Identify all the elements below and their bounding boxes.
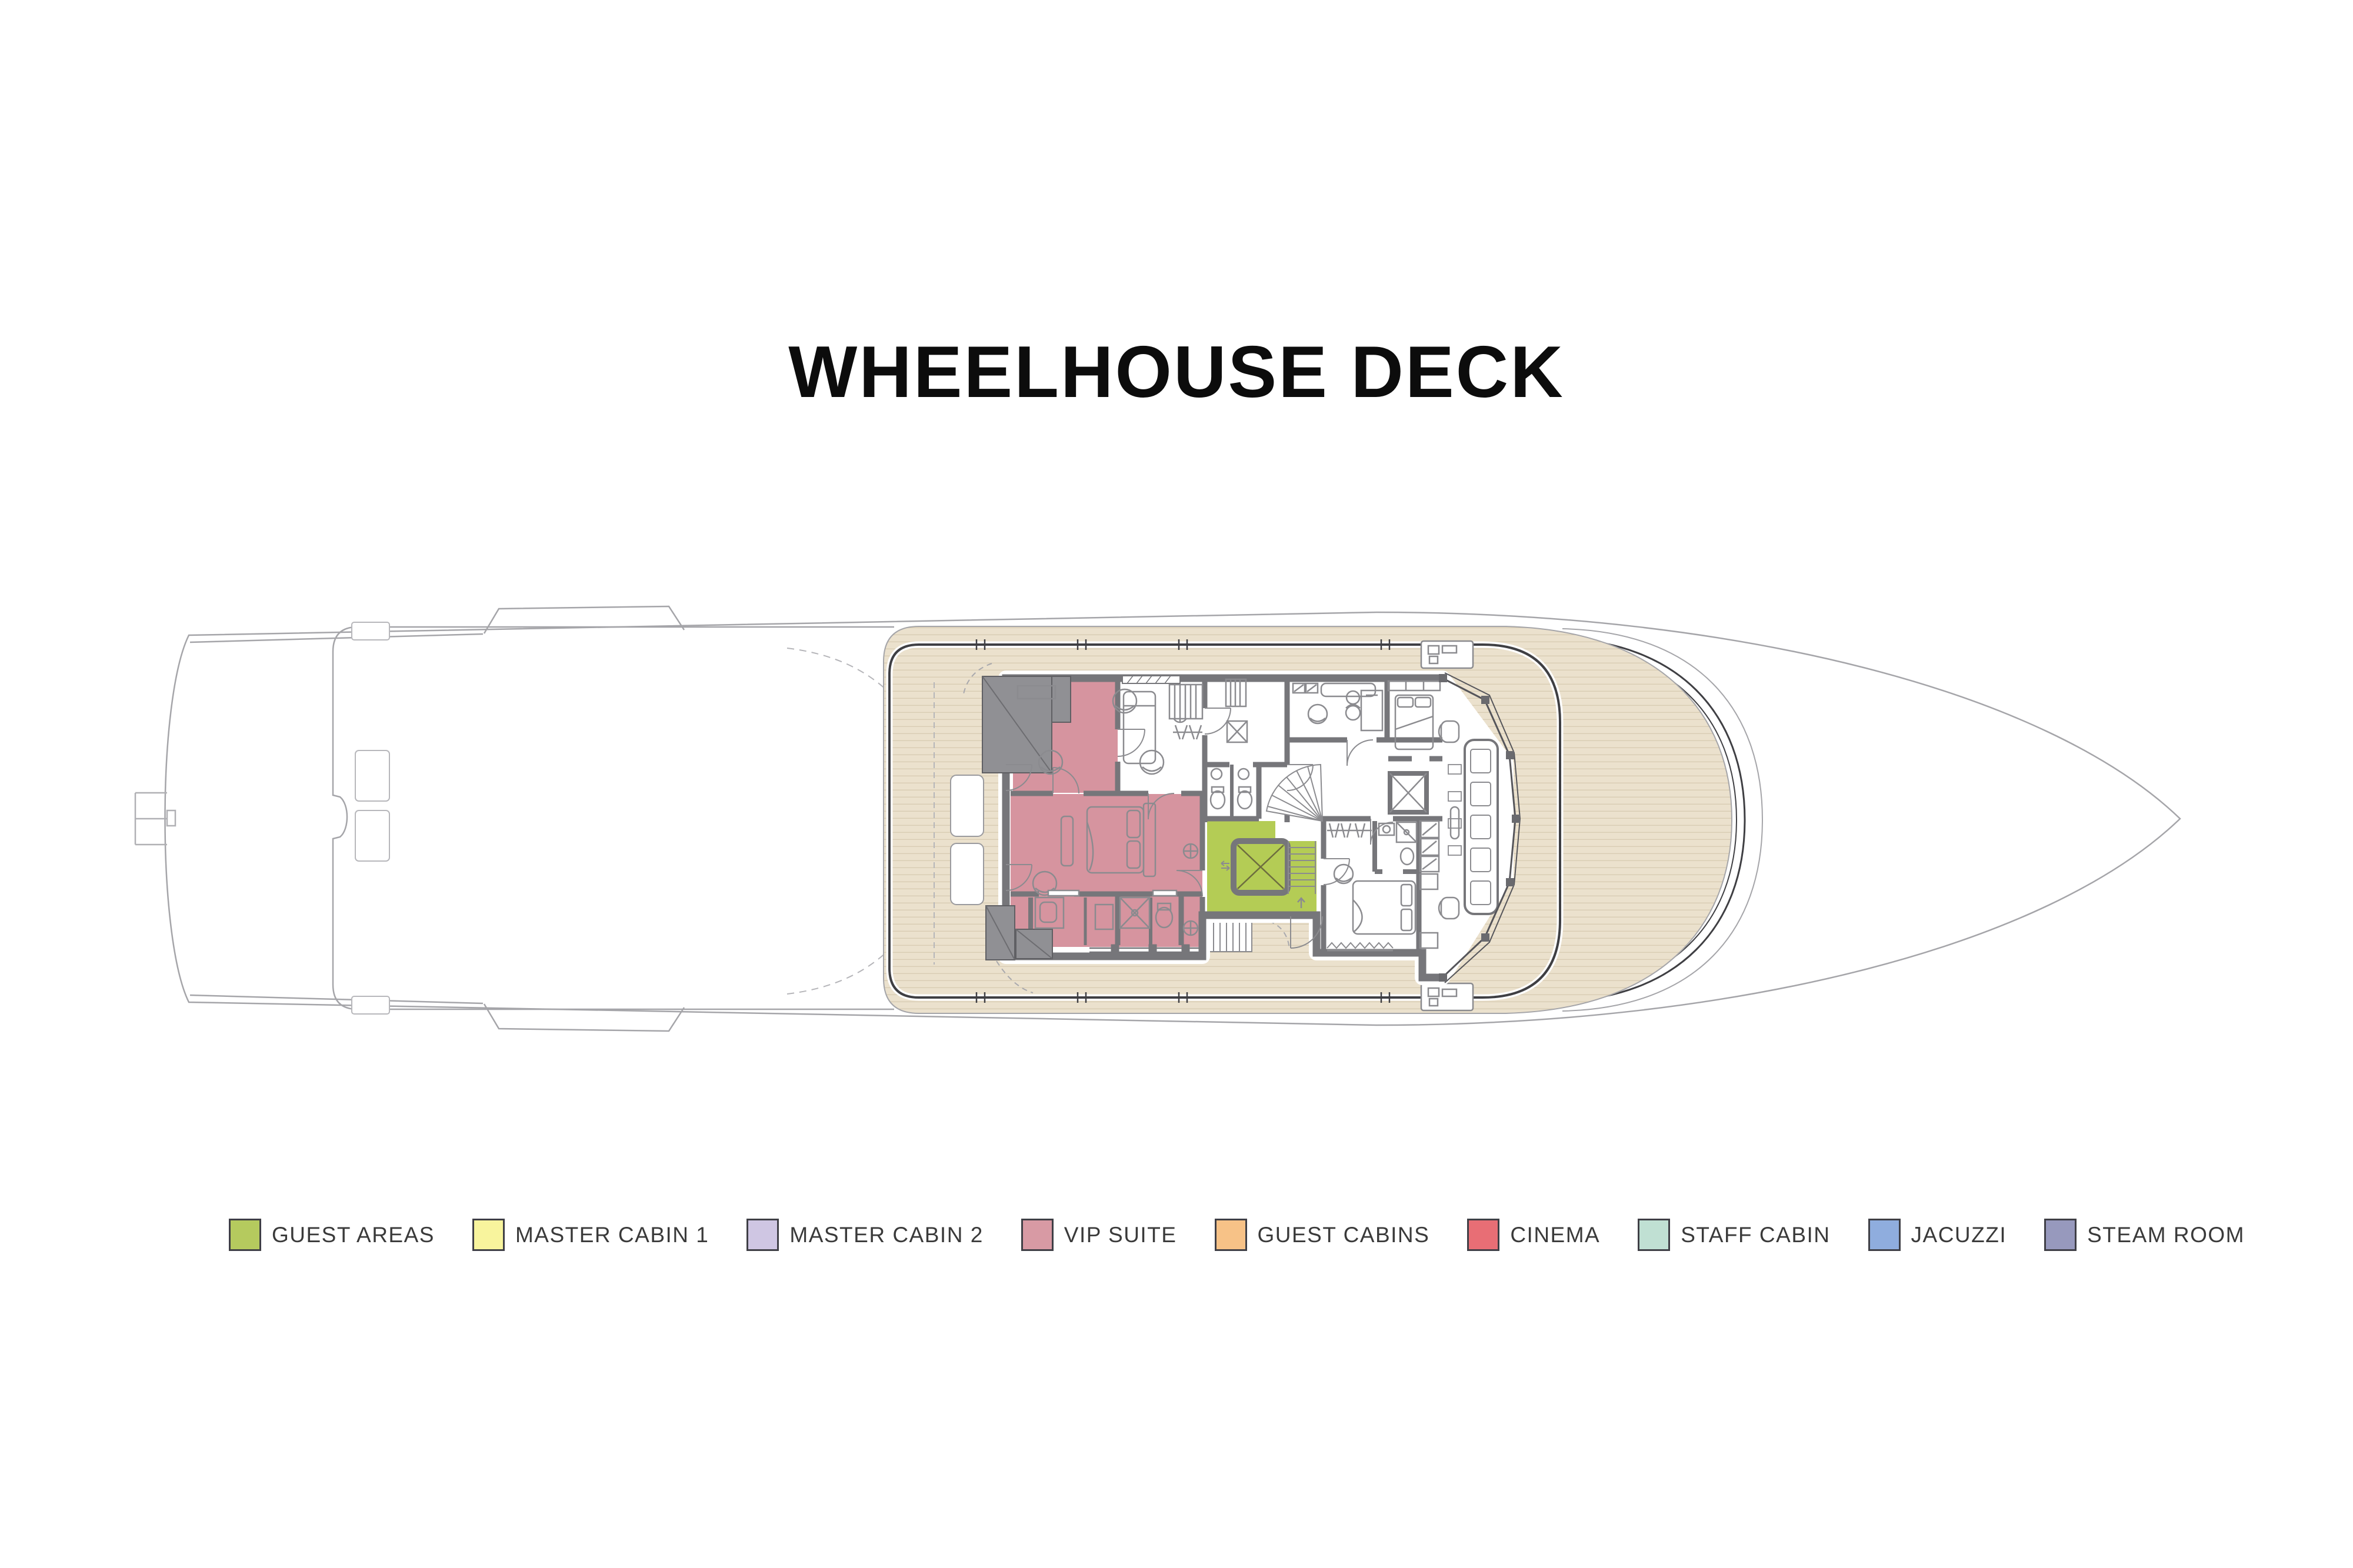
legend-item-cinema: CINEMA	[1467, 1219, 1600, 1251]
helm-console	[1465, 740, 1498, 914]
page-title: WHEELHOUSE DECK	[0, 331, 2353, 414]
legend-item-staff-cabin: STAFF CABIN	[1638, 1219, 1830, 1251]
legend-item-guest-areas: GUEST AREAS	[229, 1219, 435, 1251]
legend-label: MASTER CABIN 1	[515, 1223, 709, 1247]
legend-label: STEAM ROOM	[2087, 1223, 2245, 1247]
legend-item-jacuzzi: JACUZZI	[1868, 1219, 2007, 1251]
legend-item-master-cabin-1: MASTER CABIN 1	[472, 1219, 709, 1251]
legend-swatch-vip-suite	[1021, 1219, 1054, 1251]
legend-label: CINEMA	[1510, 1223, 1600, 1247]
legend-item-steam-room: STEAM ROOM	[2044, 1219, 2245, 1251]
legend: GUEST AREAS MASTER CABIN 1 MASTER CABIN …	[229, 1219, 2282, 1251]
legend-label: GUEST AREAS	[272, 1223, 435, 1247]
legend-swatch-cinema	[1467, 1219, 1499, 1251]
legend-swatch-guest-cabins	[1215, 1219, 1247, 1251]
legend-swatch-jacuzzi	[1868, 1219, 1901, 1251]
legend-label: VIP SUITE	[1064, 1223, 1177, 1247]
legend-label: MASTER CABIN 2	[789, 1223, 983, 1247]
legend-swatch-master-cabin-1	[472, 1219, 505, 1251]
ceiling-fan	[1184, 921, 1198, 935]
ceiling-fan	[1184, 844, 1198, 858]
legend-label: JACUZZI	[1911, 1223, 2007, 1247]
legend-swatch-staff-cabin	[1638, 1219, 1670, 1251]
deck-steps	[1207, 921, 1252, 952]
legend-label: STAFF CABIN	[1681, 1223, 1830, 1247]
legend-swatch-guest-areas	[229, 1219, 261, 1251]
legend-label: GUEST CABINS	[1258, 1223, 1430, 1247]
legend-item-guest-cabins: GUEST CABINS	[1215, 1219, 1430, 1251]
luggage-lift	[1390, 773, 1427, 812]
vip-suite-main-room	[1011, 794, 1202, 947]
legend-swatch-steam-room	[2044, 1219, 2077, 1251]
elevator	[1234, 841, 1288, 893]
wheelhouse-deck-plan	[0, 0, 2353, 1568]
legend-item-vip-suite: VIP SUITE	[1021, 1219, 1177, 1251]
legend-item-master-cabin-2: MASTER CABIN 2	[746, 1219, 983, 1251]
deck-plan-svg	[0, 0, 2353, 1568]
legend-swatch-master-cabin-2	[746, 1219, 779, 1251]
